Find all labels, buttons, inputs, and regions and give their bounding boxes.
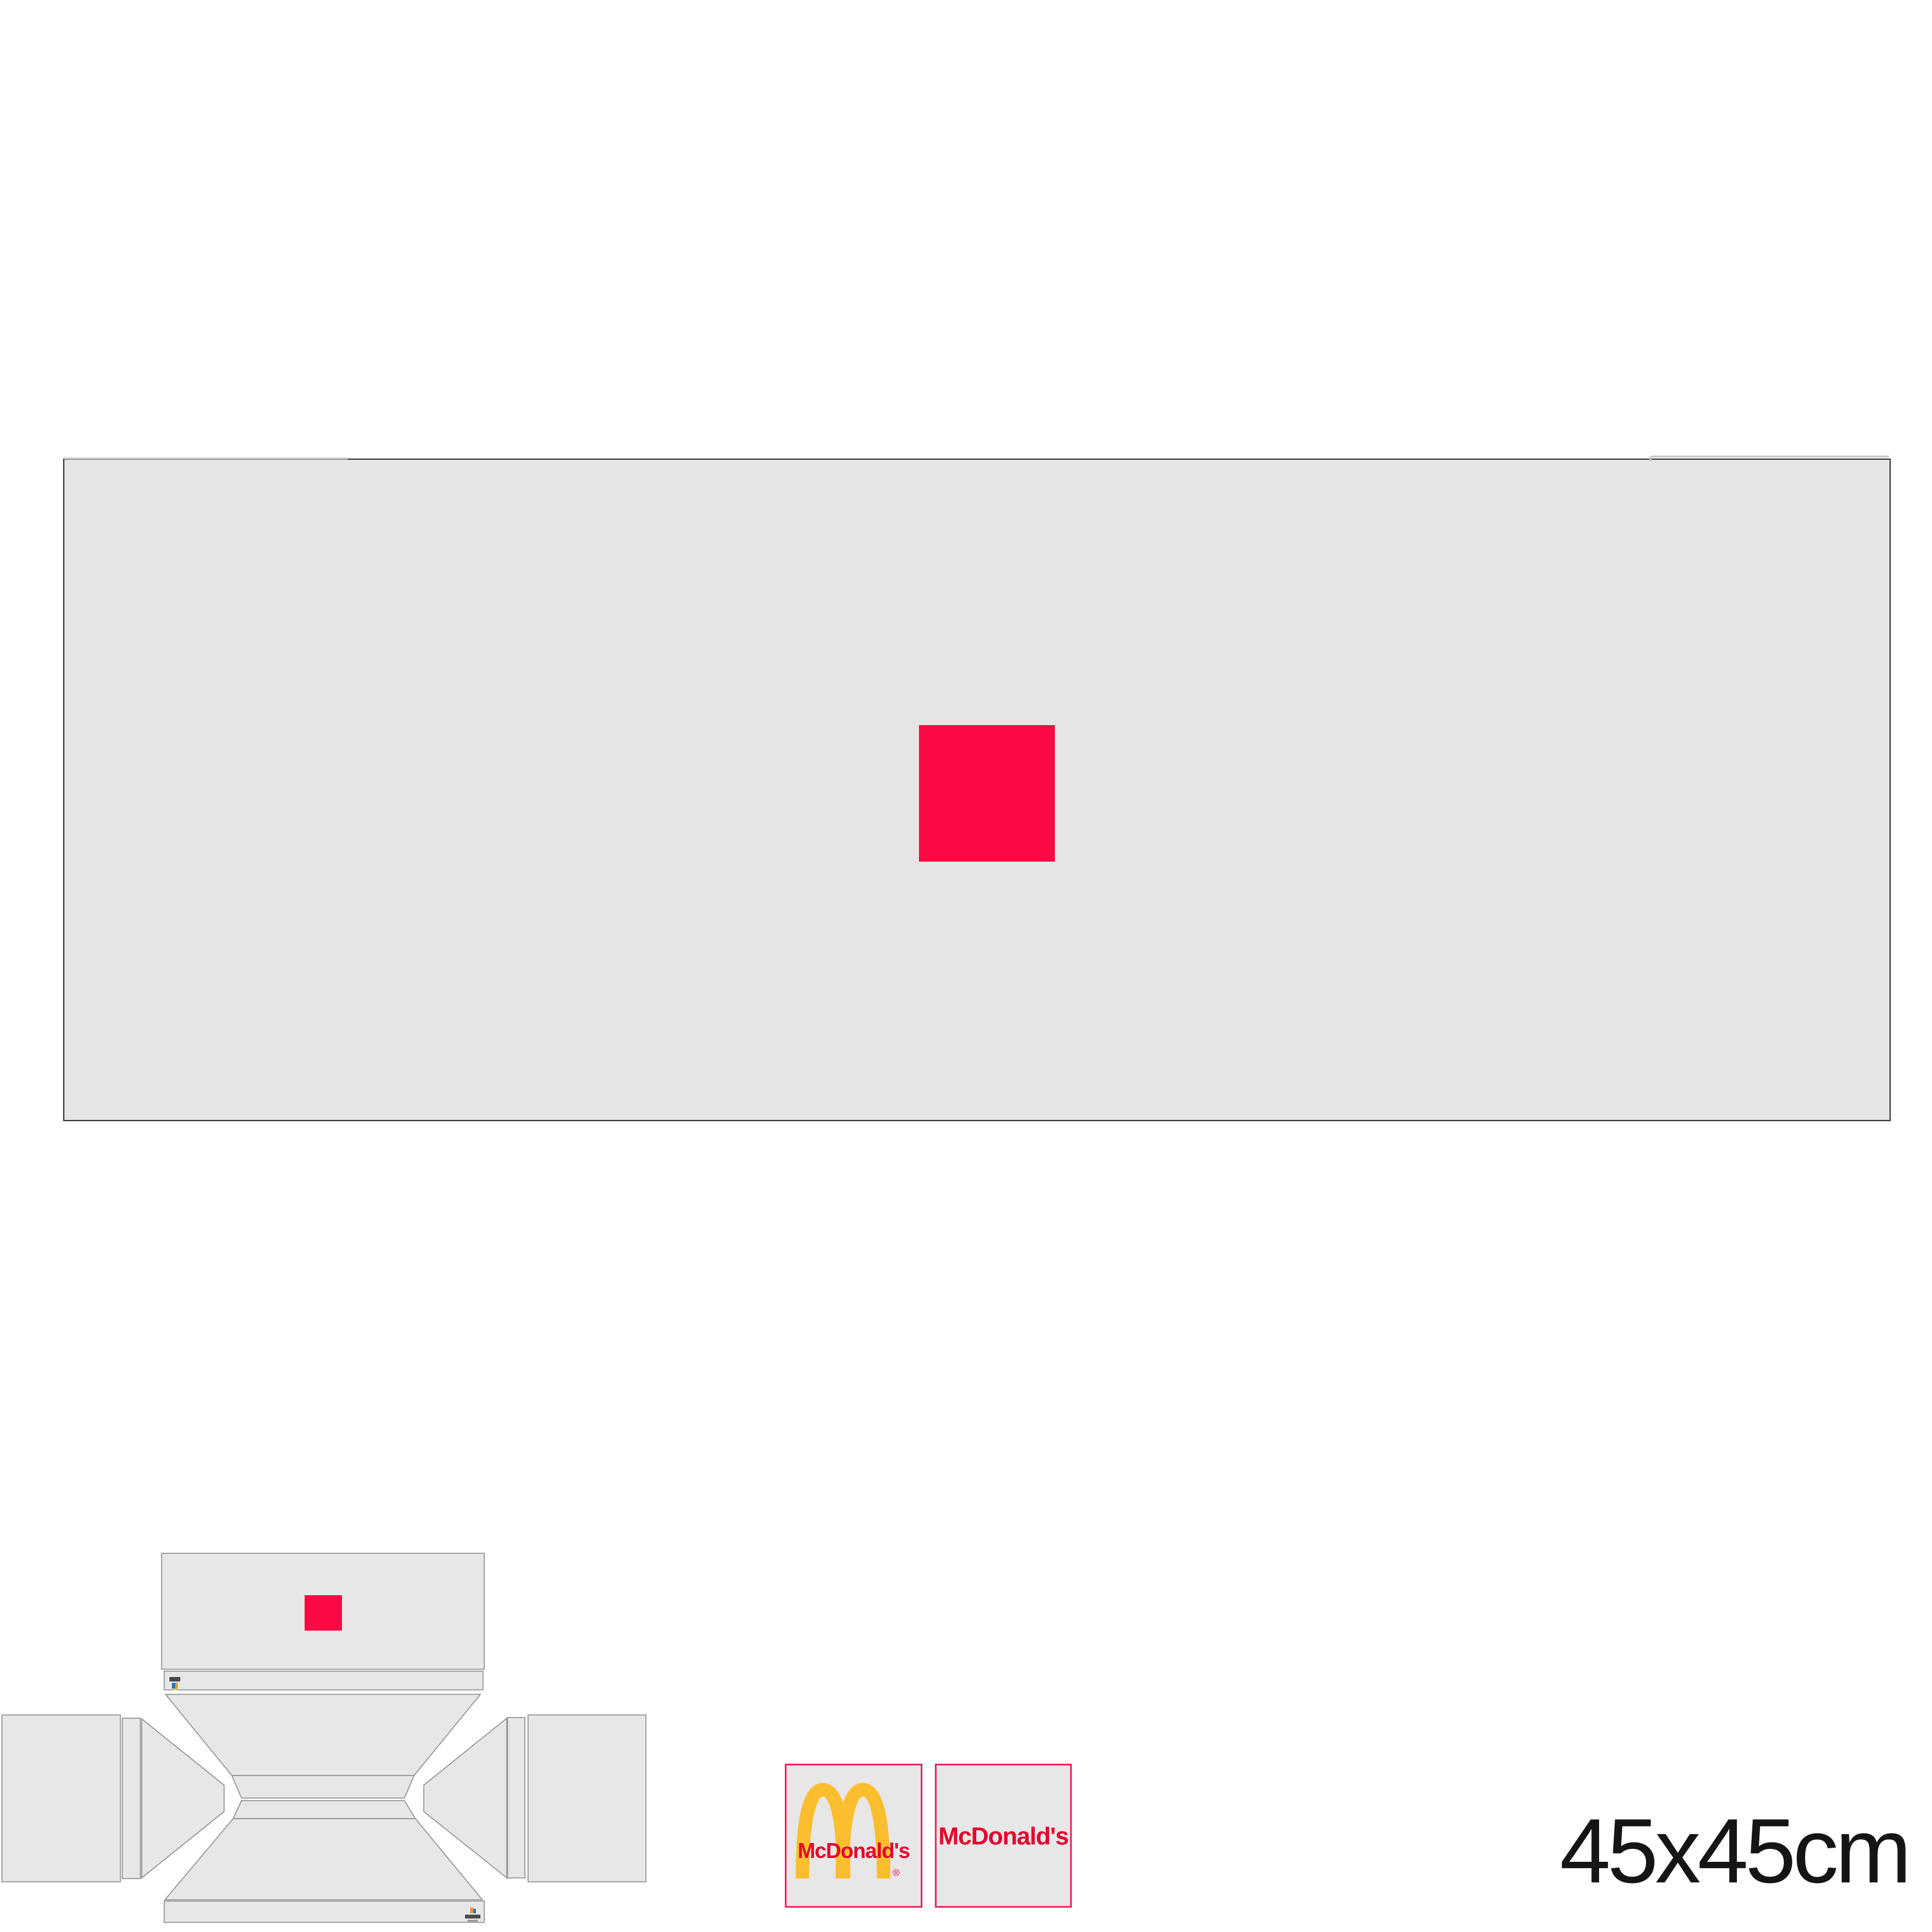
brand-wordmark: McDonald's	[787, 1840, 920, 1861]
lid-print-square	[305, 1595, 342, 1631]
box-dieline	[2, 1553, 646, 1922]
brand-wordmark: McDonald's	[936, 1824, 1071, 1849]
center-band-upper	[232, 1776, 414, 1798]
right-fold-strip	[507, 1718, 525, 1878]
side-panel-lower	[165, 1819, 482, 1900]
center-band-lower	[233, 1801, 415, 1819]
registered-mark: ®	[893, 1868, 900, 1878]
left-fold-strip	[122, 1718, 140, 1879]
side-panel-upper	[166, 1694, 480, 1776]
glue-strip-top	[164, 1671, 483, 1690]
size-label: 45x45cm	[1560, 1806, 1908, 1897]
left-end-flap	[2, 1715, 120, 1882]
print-square	[919, 725, 1055, 862]
right-end-flap	[528, 1715, 646, 1882]
dieline-drawing	[0, 0, 1932, 1932]
design-canvas: McDonald's ® McDonald's 45x45cm	[0, 0, 1932, 1932]
glue-strip-bottom	[164, 1901, 484, 1922]
